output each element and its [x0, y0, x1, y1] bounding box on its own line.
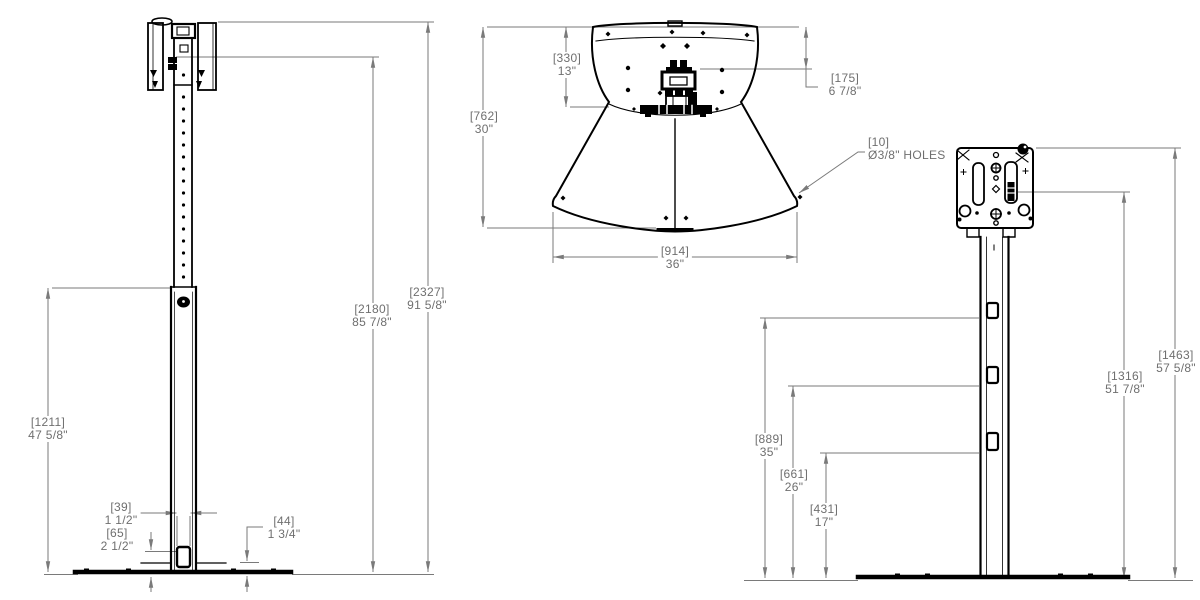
dim-label-2327: [2327] 91 5/8" — [404, 286, 450, 312]
callout-hole — [798, 195, 803, 200]
hook-high — [987, 303, 998, 318]
dim-label-1211: [1211] 47 5/8" — [25, 416, 71, 442]
dim-label-914: [914] 36" — [658, 245, 692, 271]
dim-label-2180: [2180] 85 7/8" — [349, 303, 395, 329]
dim-label-762: [762] 30" — [467, 110, 501, 136]
front-view — [75, 18, 291, 572]
top-view — [553, 21, 803, 232]
dim-label-1316: [1316] 51 7/8" — [1102, 370, 1148, 396]
drawing-linework — [0, 0, 1200, 600]
adjustment-holes — [182, 73, 185, 278]
column-cap — [172, 24, 195, 38]
dim-label-330: [330] 13" — [550, 52, 584, 78]
dim-label-39: [39] 1 1/2" — [102, 501, 141, 527]
dim-line-44 — [247, 527, 263, 561]
clamp-handle — [152, 18, 172, 25]
dim-label-44: [44] 1 3/4" — [265, 515, 304, 541]
hook-mid — [987, 367, 998, 383]
keyhole-right — [1019, 205, 1030, 216]
side-view — [858, 144, 1128, 578]
bracket-slot-left — [973, 163, 984, 205]
cable-cutout — [177, 547, 190, 567]
dim-label-889: [889] 35" — [752, 433, 786, 459]
dim-label-65: [65] 2 1/2" — [98, 527, 137, 553]
dim-label-661: [661] 26" — [777, 468, 811, 494]
bracket-knob — [1018, 144, 1029, 155]
leader-holes — [799, 152, 872, 193]
keyhole-left — [960, 206, 971, 217]
dim-label-175: [175] 6 7/8" — [826, 72, 865, 98]
dim-label-1463: [1463] 57 5/8" — [1153, 349, 1199, 375]
bracket-plate-left — [148, 23, 163, 90]
drawing-sheet: [1211] 47 5/8" [2180] 85 7/8" [2327] 91 … — [0, 0, 1200, 600]
hole-callout-label: [10] Ø3/8" HOLES — [865, 136, 949, 162]
dim-label-431: [431] 17" — [807, 503, 841, 529]
hook-low — [987, 433, 998, 450]
